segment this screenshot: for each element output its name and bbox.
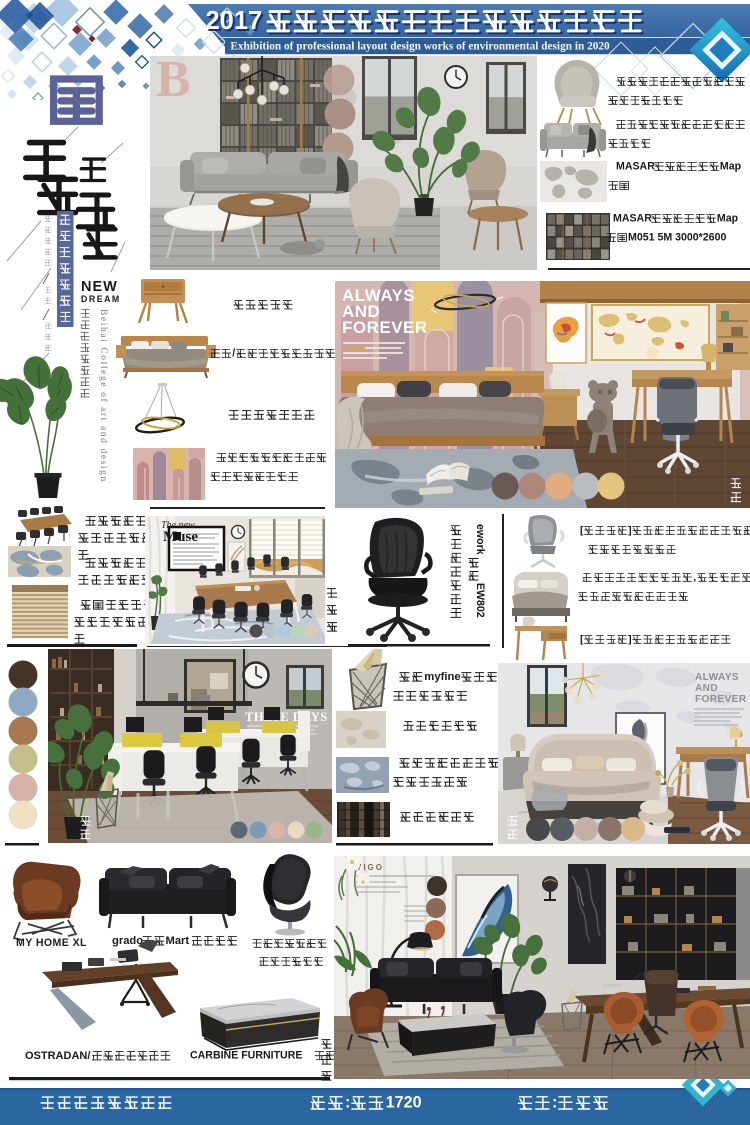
svg-text:2017: 2017 [206, 7, 263, 35]
svg-text:Map: Map [720, 161, 742, 173]
svg-text:Beihai College of art and desi: Beihai College of art and design [98, 309, 109, 483]
svg-text:B: B [156, 56, 191, 108]
svg-text:CARBINE FURNITURE: CARBINE FURNITURE [190, 1050, 302, 1062]
svg-text:Exhibition of professional lay: Exhibition of professional layout design… [230, 41, 610, 53]
svg-text::: : [345, 1094, 350, 1112]
svg-text:grado: grado [112, 935, 143, 947]
svg-text:/: / [232, 348, 235, 360]
svg-text:M051 5M 3000*2600: M051 5M 3000*2600 [628, 232, 726, 244]
svg-text:MASAR: MASAR [616, 161, 655, 173]
svg-text:[: [ [580, 635, 584, 646]
svg-text:,: , [693, 573, 696, 584]
svg-text:]: ] [628, 526, 631, 537]
svg-text:Map: Map [717, 213, 739, 225]
svg-text::: : [552, 1094, 557, 1112]
svg-text:FOREVER: FOREVER [342, 318, 428, 337]
svg-text:MY HOME XL: MY HOME XL [16, 937, 87, 949]
svg-text:MASAR: MASAR [613, 213, 652, 225]
svg-text:1720: 1720 [386, 1094, 422, 1112]
svg-text:OSTRADAN/: OSTRADAN/ [25, 1050, 90, 1062]
svg-text:[: [ [580, 526, 584, 537]
svg-text:]: ] [628, 635, 631, 646]
svg-text:AND: AND [695, 683, 718, 694]
svg-text:VIGO: VIGO [356, 863, 384, 872]
svg-text:Muse: Muse [163, 529, 198, 545]
svg-text:Mart: Mart [166, 935, 190, 947]
svg-text:FOREVER: FOREVER [695, 694, 747, 705]
svg-text:ALWAYS: ALWAYS [695, 672, 739, 683]
svg-text:myfine: myfine [424, 671, 460, 683]
